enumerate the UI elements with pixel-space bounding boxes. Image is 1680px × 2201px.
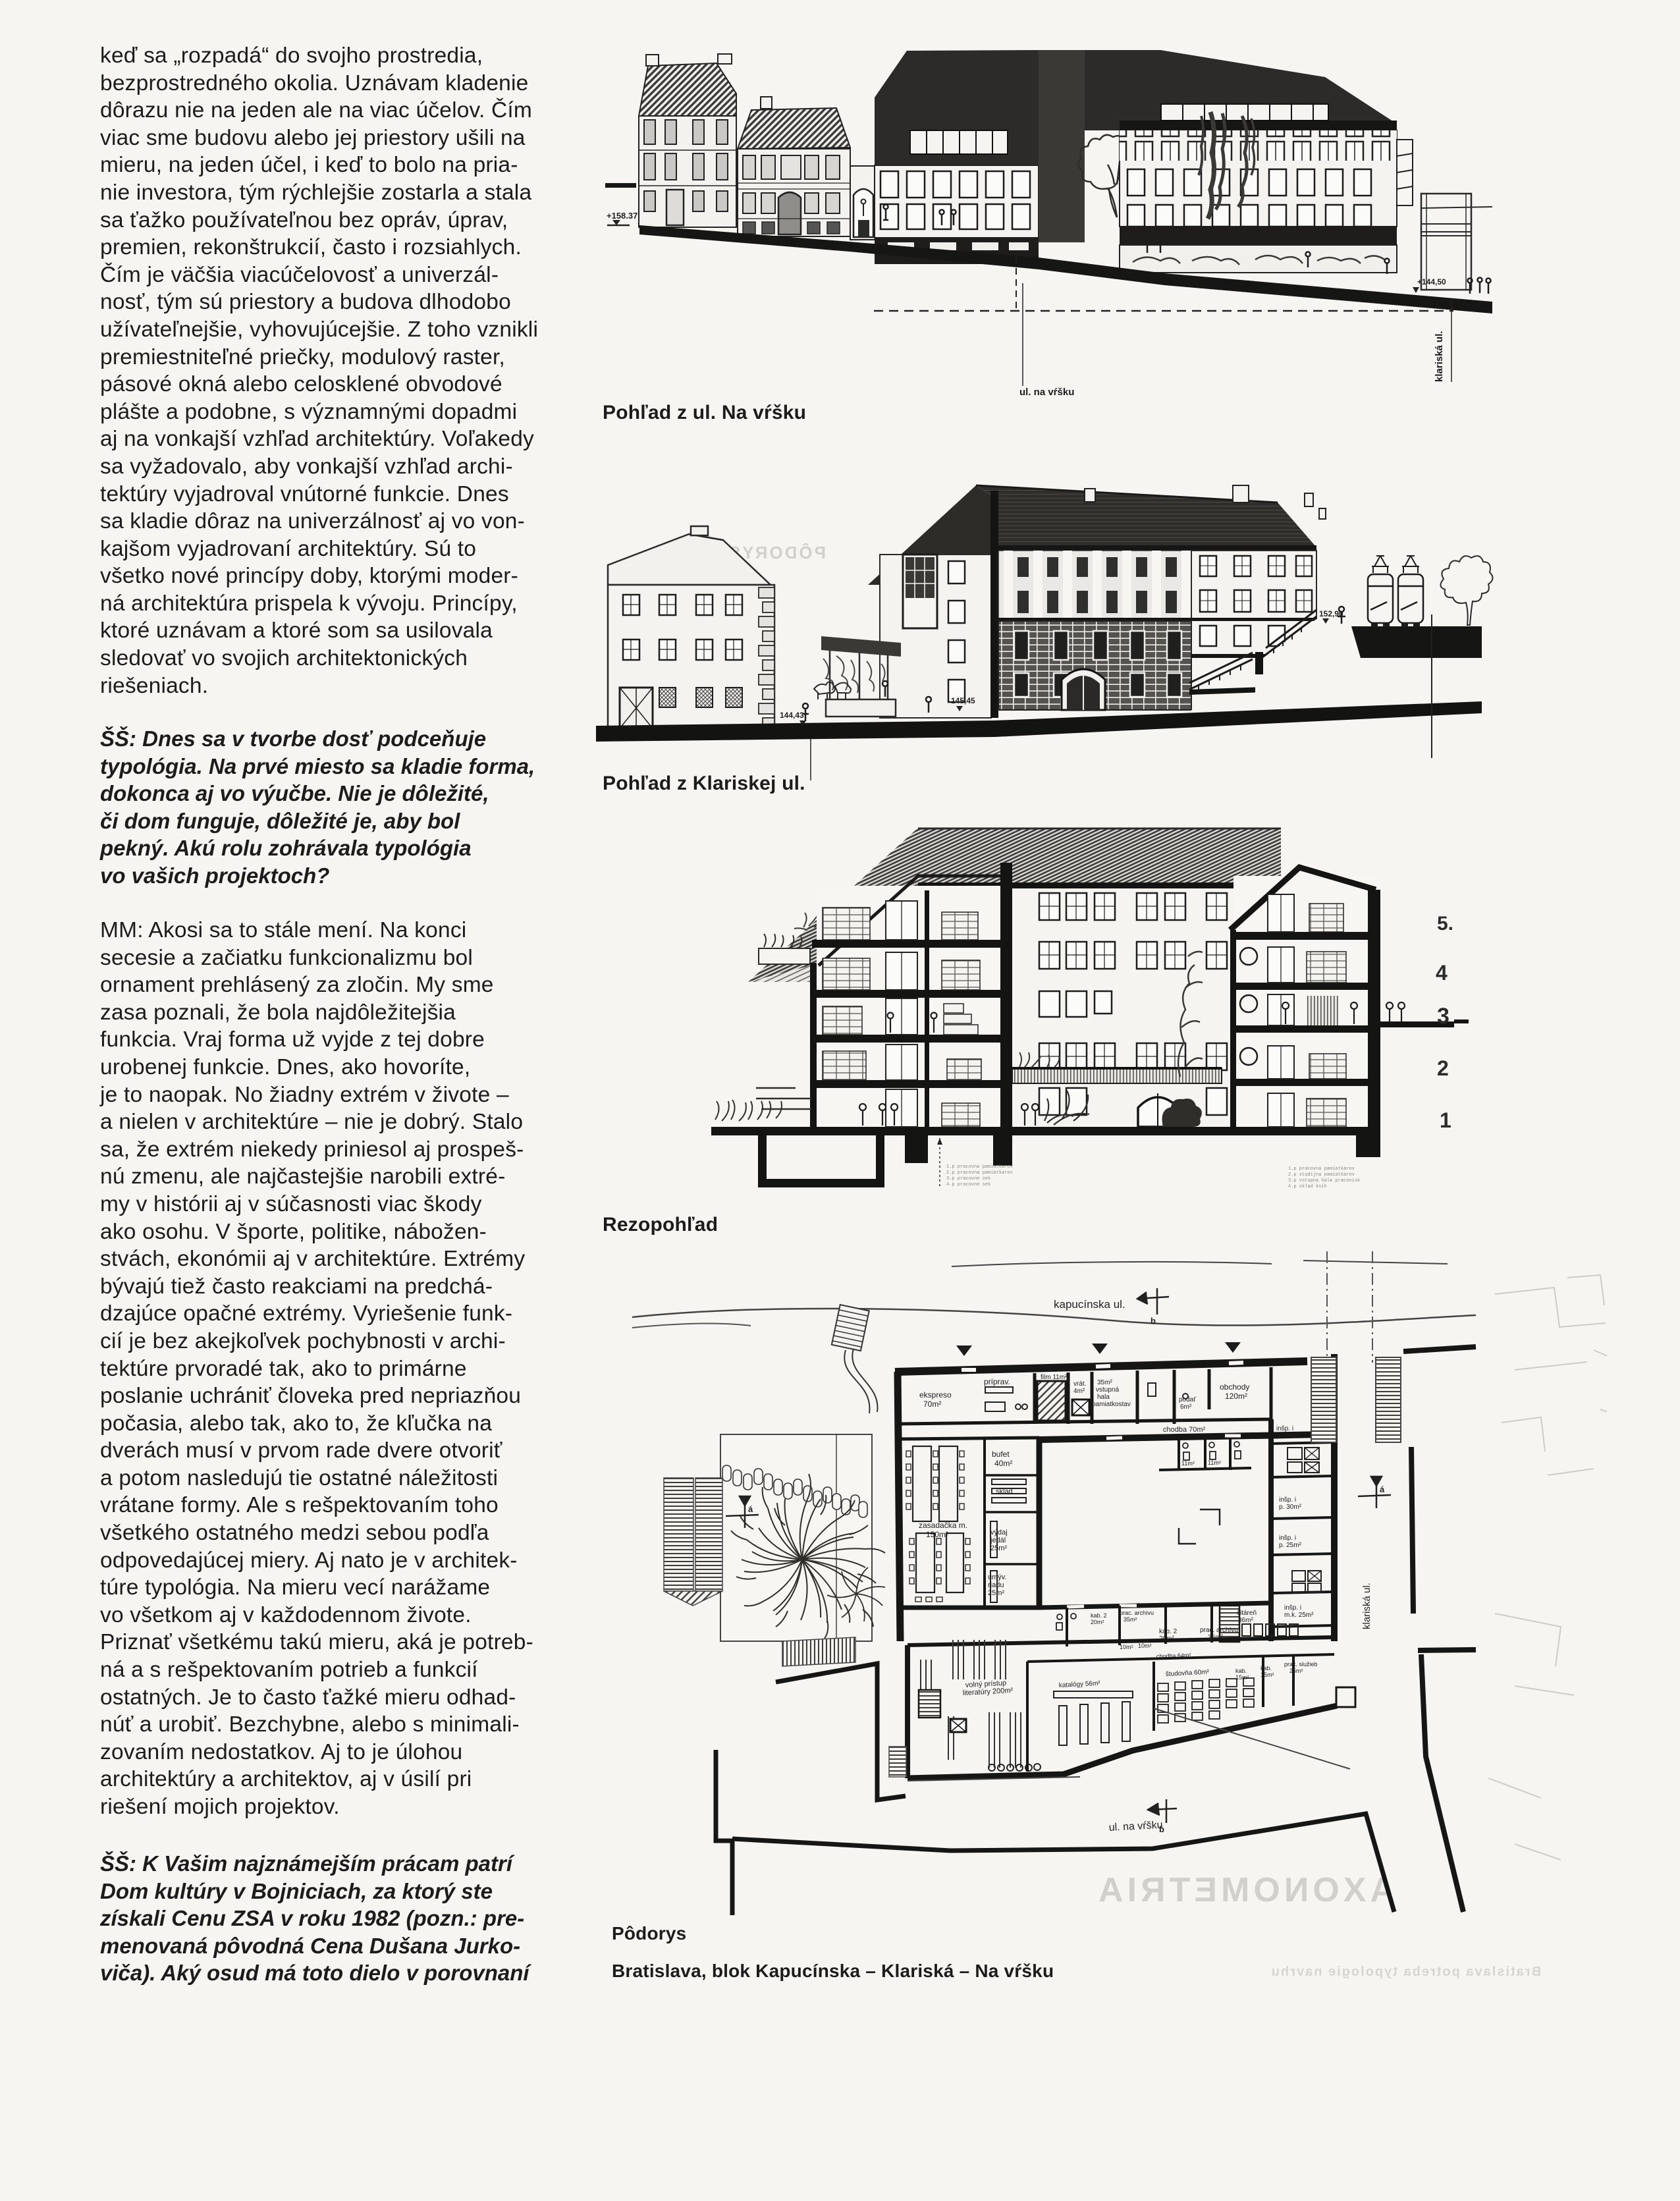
svg-text:p. 30m²: p. 30m²: [1279, 1504, 1302, 1511]
svg-text:4.p sklad knih: 4.p sklad knih: [1288, 1184, 1327, 1189]
svg-text:kab.: kab.: [1260, 1665, 1272, 1671]
svg-text:inšp. i: inšp. i: [1279, 1535, 1296, 1542]
svg-text:chodba 70m²: chodba 70m²: [1163, 1426, 1206, 1434]
svg-text:145,45: 145,45: [951, 696, 975, 705]
svg-text:20m²: 20m²: [1159, 1635, 1174, 1643]
svg-text:kapucínska ul.: kapucínska ul.: [1054, 1298, 1125, 1311]
svg-text:riadu: riadu: [988, 1581, 1004, 1589]
svg-text:11m²: 11m²: [1208, 1459, 1221, 1466]
svg-text:35m²: 35m²: [1124, 1616, 1137, 1623]
svg-text:3.p pracovne sek: 3.p pracovne sek: [946, 1176, 990, 1182]
svg-text:podať: podať: [1179, 1396, 1196, 1403]
svg-text:inšp. i: inšp. i: [1284, 1604, 1301, 1612]
svg-text:10m²: 10m²: [1138, 1643, 1152, 1649]
svg-text:3: 3: [1437, 1004, 1450, 1029]
svg-text:výdaj: výdaj: [990, 1529, 1008, 1536]
svg-text:+158.37: +158.37: [607, 211, 637, 221]
svg-text:35m²: 35m²: [1208, 1634, 1223, 1641]
svg-text:vrát.: vrát.: [1073, 1380, 1086, 1388]
svg-text:inšp. i: inšp. i: [1276, 1425, 1293, 1432]
svg-text:2: 2: [1437, 1056, 1449, 1080]
svg-text:ul. na vŕšku: ul. na vŕšku: [1108, 1820, 1163, 1834]
svg-text:144,43: 144,43: [780, 711, 804, 720]
svg-text:jedál: jedál: [990, 1536, 1006, 1544]
svg-text:hala: hala: [1097, 1394, 1110, 1401]
svg-text:kab. 2: kab. 2: [1159, 1628, 1178, 1635]
svg-text:4m²: 4m²: [1073, 1388, 1085, 1395]
svg-text:obchody: obchody: [1220, 1382, 1249, 1392]
svg-text:1.p pracovna pamiatkarov: 1.p pracovna pamiatkarov: [1288, 1166, 1355, 1172]
svg-text:25m²: 25m²: [990, 1544, 1007, 1552]
svg-text:120m²: 120m²: [1225, 1392, 1247, 1401]
svg-text:vstupná: vstupná: [1096, 1386, 1119, 1394]
svg-text:4.p pracovne sek: 4.p pracovne sek: [946, 1182, 990, 1187]
svg-text:prac. archívu: prac. archívu: [1200, 1627, 1238, 1634]
svg-text:15m²: 15m²: [1260, 1671, 1274, 1678]
svg-text:25m²: 25m²: [1289, 1668, 1303, 1674]
svg-text:70m²: 70m²: [923, 1399, 941, 1409]
svg-text:35m²: 35m²: [1097, 1379, 1112, 1386]
svg-text:bufet: bufet: [992, 1450, 1010, 1459]
svg-text:študovňa 60m²: študovňa 60m²: [1166, 1669, 1210, 1678]
svg-text:m.k. 25m²: m.k. 25m²: [1284, 1612, 1314, 1619]
svg-text:3.p vstupna hala pracovisk: 3.p vstupna hala pracovisk: [1288, 1178, 1360, 1183]
svg-text:á: á: [748, 1504, 753, 1514]
svg-text:36m²: 36m²: [1238, 1617, 1253, 1624]
svg-text:+144,50: +144,50: [1417, 277, 1446, 286]
svg-text:á: á: [1380, 1484, 1385, 1494]
svg-text:25m²: 25m²: [988, 1589, 1004, 1597]
svg-text:p. 22m²: p. 22m²: [1276, 1432, 1299, 1440]
svg-text:sklad: sklad: [996, 1488, 1013, 1496]
svg-text:b: b: [1159, 1824, 1164, 1834]
svg-text:pamiatkostav: pamiatkostav: [1092, 1401, 1131, 1408]
svg-text:1: 1: [1440, 1108, 1451, 1132]
svg-text:15m²: 15m²: [1235, 1674, 1249, 1681]
svg-text:Bratislava potreba typologie n: Bratislava potreba typologie navrhu: [1270, 1965, 1541, 1979]
svg-text:ekspreso: ekspreso: [919, 1390, 952, 1399]
svg-text:2.p pracovna pamiatkarov: 2.p pracovna pamiatkarov: [946, 1170, 1013, 1176]
svg-text:klariská ul.: klariská ul.: [1361, 1583, 1372, 1629]
svg-text:klariská ul.: klariská ul.: [1434, 331, 1445, 382]
svg-text:b: b: [1151, 1316, 1156, 1326]
svg-text:umýv.: umýv.: [988, 1573, 1007, 1581]
svg-text:prac. archívu: prac. archívu: [1120, 1610, 1154, 1616]
svg-text:40m²: 40m²: [994, 1459, 1012, 1468]
svg-text:150m²: 150m²: [926, 1530, 948, 1539]
svg-text:inšp. i: inšp. i: [1279, 1496, 1296, 1504]
svg-text:5.: 5.: [1437, 913, 1453, 935]
svg-text:ul. na vŕšku: ul. na vŕšku: [1019, 387, 1074, 398]
svg-text:4: 4: [1436, 961, 1448, 985]
svg-text:2.p studijna pamiatkarov: 2.p studijna pamiatkarov: [1288, 1172, 1355, 1178]
svg-text:katalógy 56m²: katalógy 56m²: [1059, 1680, 1101, 1689]
svg-text:príprav.: príprav.: [984, 1377, 1010, 1386]
svg-text:10m²: 10m²: [1120, 1644, 1133, 1650]
svg-text:kab. 2: kab. 2: [1091, 1612, 1107, 1619]
svg-text:kab.: kab.: [1235, 1668, 1247, 1674]
svg-text:20m²: 20m²: [1091, 1619, 1104, 1625]
svg-text:chodba 64m²: chodba 64m²: [1156, 1652, 1191, 1660]
svg-text:6m²: 6m²: [1180, 1403, 1192, 1411]
svg-text:zasadačka m.: zasadačka m.: [919, 1521, 967, 1530]
svg-text:čitáreň: čitáreň: [1237, 1610, 1257, 1617]
svg-text:11m²: 11m²: [1181, 1460, 1195, 1467]
svg-text:1.p pracovna pamiatkarov: 1.p pracovna pamiatkarov: [946, 1164, 1013, 1170]
svg-text:film 11m²: film 11m²: [1041, 1374, 1068, 1381]
svg-text:p. 25m²: p. 25m²: [1279, 1542, 1302, 1549]
svg-text:prac. služieb: prac. služieb: [1284, 1661, 1318, 1668]
